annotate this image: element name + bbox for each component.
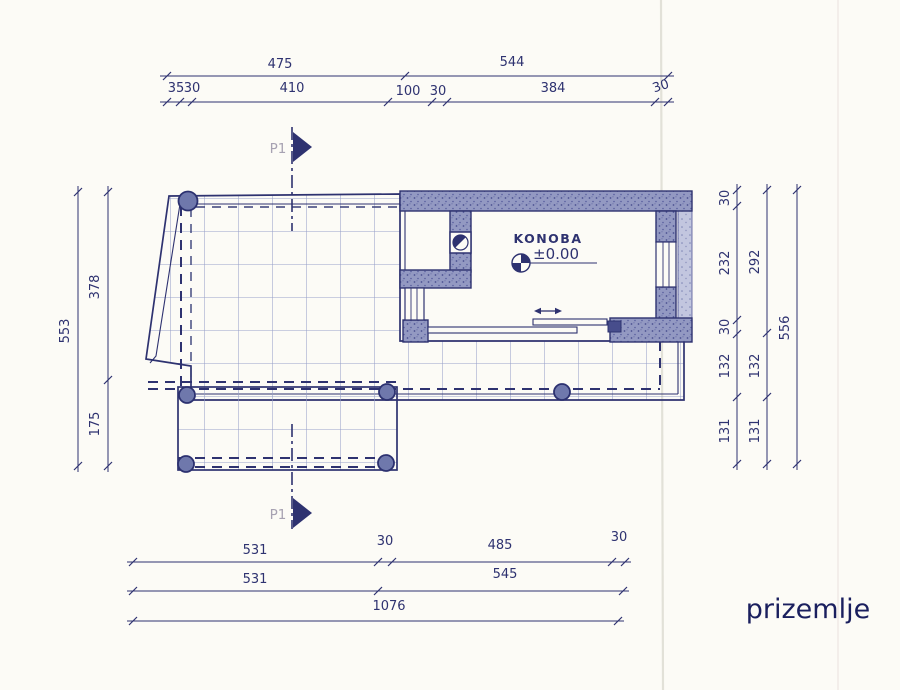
column-pergola-sw [178, 456, 194, 472]
sliding-door-panel-2 [533, 319, 607, 325]
dim-label: 131 [718, 419, 733, 444]
dim-left-outer: 553 [58, 186, 82, 472]
sliding-door-pocket [608, 321, 621, 332]
dim-label: 30 [184, 81, 201, 96]
dim-top-row2: 35 30 410 100 30 384 30 [160, 77, 674, 106]
section-label-top: P1 [270, 141, 287, 157]
sliding-door-panel-1 [428, 327, 577, 333]
wall-north [400, 191, 692, 211]
dim-label: 378 [88, 275, 103, 300]
column-pergola-nw [179, 387, 195, 403]
window-east [656, 242, 676, 287]
dim-right-outer: 556 [778, 184, 801, 470]
dim-bottom-row3: 1076 [127, 599, 624, 625]
dim-label: 553 [58, 319, 73, 344]
dim-label: 410 [280, 81, 305, 96]
dim-label: 30 [377, 534, 394, 549]
dim-top-row1: 475 544 [160, 55, 674, 80]
wall-east-lower [656, 287, 676, 320]
dim-label: 485 [488, 538, 513, 553]
wall-south-east-corner [610, 318, 692, 342]
room-name: KONOBA [513, 231, 582, 246]
dim-label: 475 [268, 57, 293, 72]
dim-label: 384 [541, 81, 566, 96]
dim-label: 531 [243, 572, 268, 587]
wall-south-west-pier [403, 320, 428, 342]
level-marker-icon [512, 254, 530, 272]
column-strip-1 [379, 384, 395, 400]
dim-label: 30 [718, 190, 733, 207]
floor-drain-icon [450, 232, 471, 253]
dim-bottom-row2: 531 545 [127, 567, 629, 595]
dim-label: 175 [88, 412, 103, 437]
niche-wall-south [400, 270, 471, 288]
dim-label: 545 [493, 567, 518, 582]
dim-right-inner: 30 232 30 132 131 [718, 184, 741, 470]
dim-label: 531 [243, 543, 268, 558]
door-slide-arrow-icon [534, 308, 562, 314]
dim-label: 232 [718, 251, 733, 276]
section-cut-icon-bottom [293, 498, 312, 528]
section-label-bottom: P1 [270, 507, 287, 523]
dim-label: 35 [168, 81, 185, 96]
room-level: ±0.00 [533, 245, 579, 263]
column-terrace-nw [179, 192, 198, 211]
dim-label: 292 [748, 250, 763, 275]
sliding-door [428, 308, 621, 333]
column-pergola-se [378, 455, 394, 471]
dim-label: 30 [611, 530, 628, 545]
dim-left-inner: 378 175 [88, 186, 112, 472]
wall-east-upper [656, 211, 676, 242]
dim-label: 544 [500, 55, 525, 70]
floor-plan-scan: KONOBA ±0.00 P1 P1 475 544 35 30 410 100… [0, 0, 900, 690]
dim-label: 30 [651, 77, 671, 96]
dim-label: 556 [778, 316, 793, 341]
dim-label: 30 [718, 319, 733, 336]
dim-label: 131 [748, 419, 763, 444]
dim-label: 30 [430, 84, 447, 99]
paper-artifacts [661, 0, 838, 690]
dim-right-middle: 292 132 131 [748, 184, 771, 470]
window-west [405, 288, 424, 320]
dim-label: 100 [396, 84, 421, 99]
dim-label: 1076 [372, 599, 405, 614]
dim-bottom-row1: 531 30 485 30 [127, 530, 631, 566]
section-cut-icon-top [293, 132, 312, 162]
room-annotation: KONOBA ±0.00 [512, 231, 597, 272]
dim-label: 132 [718, 354, 733, 379]
plan-drawing: KONOBA ±0.00 P1 P1 [146, 127, 692, 529]
page-title: prizemlje [746, 594, 870, 625]
column-strip-2 [554, 384, 570, 400]
dim-label: 132 [748, 354, 763, 379]
